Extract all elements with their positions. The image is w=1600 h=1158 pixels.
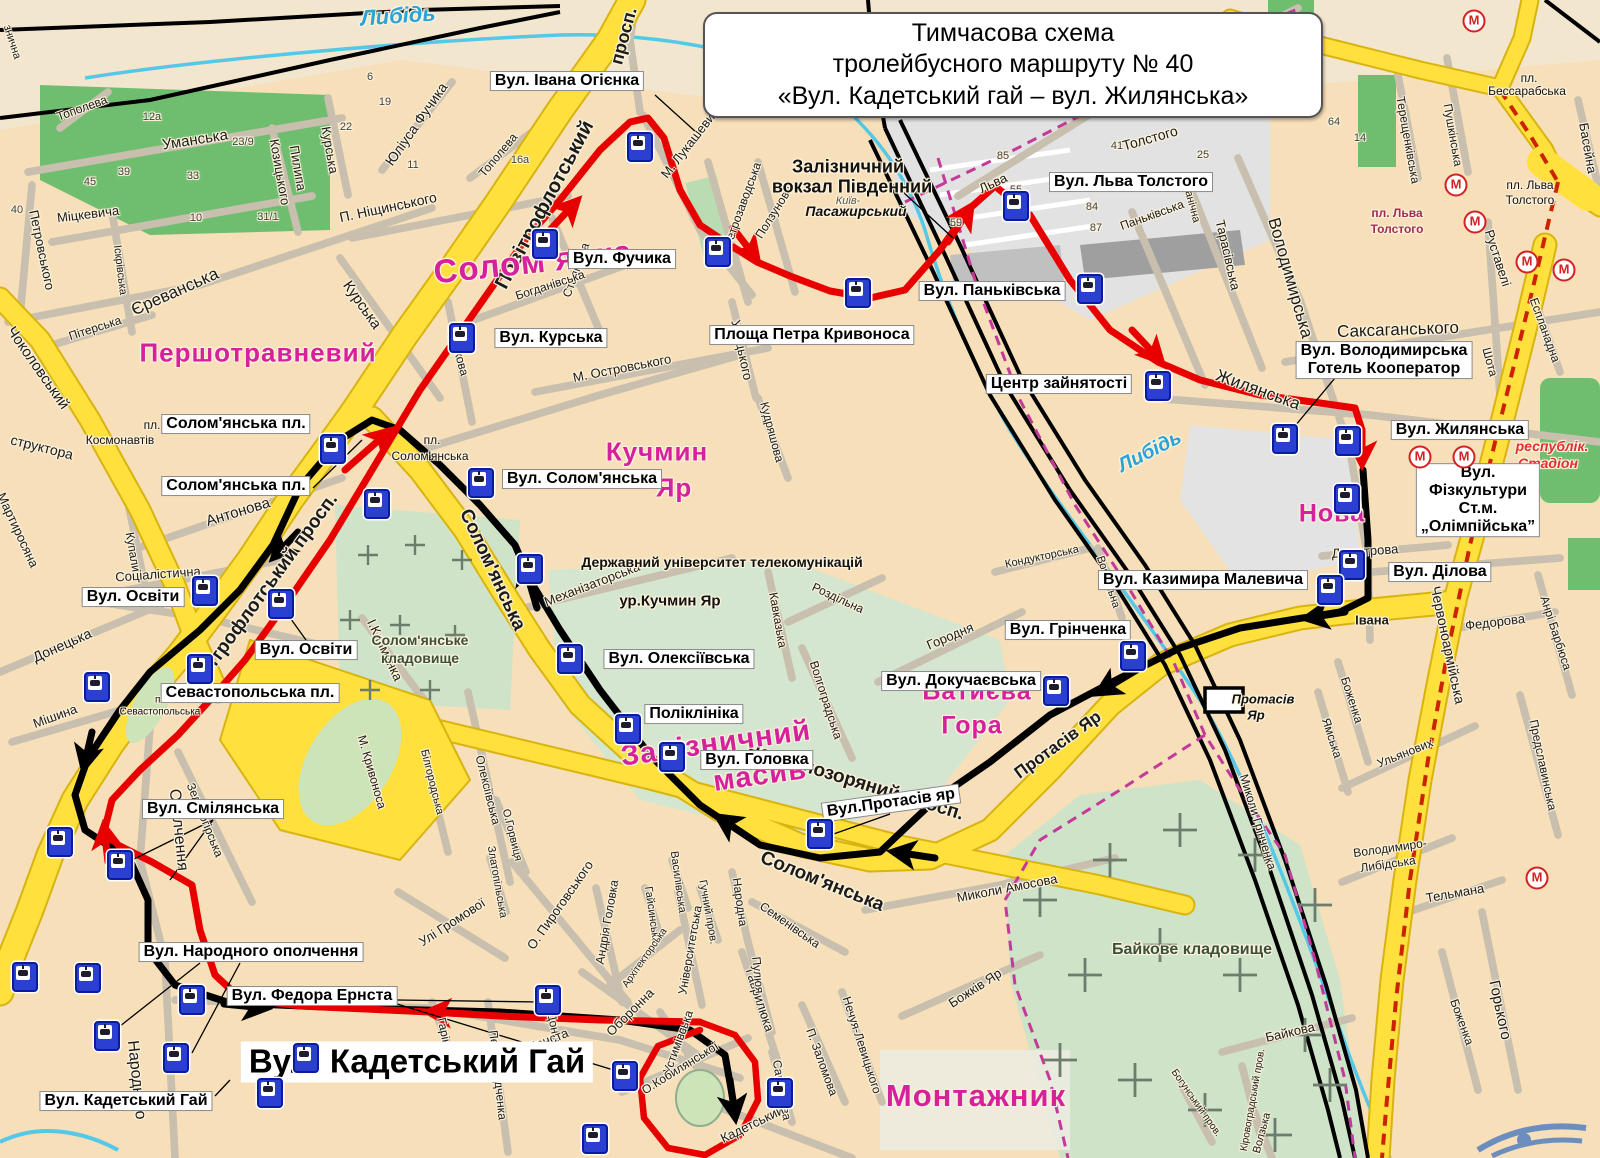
bus-stop-icon — [615, 714, 641, 744]
street-label: знична — [1, 23, 23, 60]
street-label: Ямська — [1319, 716, 1345, 760]
bus-stop-icon — [84, 672, 110, 702]
street-label: Пітерська — [67, 313, 123, 343]
stop-label: Солом'янська пл. — [162, 477, 309, 495]
street-label: Миколи Амосова — [955, 871, 1058, 905]
house-number: 59 — [950, 217, 962, 229]
street-label: Уманська — [161, 126, 229, 153]
bus-glyph — [665, 750, 675, 756]
street-label: структора — [9, 432, 75, 463]
street-label: Тельмана — [1425, 880, 1486, 905]
house-number: 6 — [367, 71, 373, 83]
street-label: Олексіївська — [473, 754, 504, 826]
bus-stop-icon — [94, 1021, 120, 1051]
street-label: Архітекторська — [620, 926, 669, 990]
bus-glyph — [1340, 492, 1350, 498]
bus-glyph — [1345, 558, 1355, 564]
bus-glyph — [90, 680, 100, 686]
bus-glyph — [1083, 282, 1093, 288]
labels-layer: зничнаУманськаМіцкевичаЄреванськаПетровс… — [0, 0, 1600, 1158]
bus-stop-icon — [535, 985, 561, 1015]
street-label: Байкова — [1264, 1019, 1316, 1045]
bus-stop-icon — [557, 644, 583, 674]
map-label: Космонавтів — [86, 433, 155, 447]
metro-station-icon: М — [1553, 259, 1576, 282]
trolley-pole-icon — [542, 232, 544, 236]
street-label: Володимирська — [1263, 216, 1316, 341]
street-label: Богунський пров. — [1169, 1067, 1224, 1138]
metro-station-icon: М — [1526, 867, 1549, 890]
title-line-3: «Вул. Кадетський гай – вул. Жилянська» — [778, 81, 1249, 112]
street-label: Оборонна — [603, 985, 657, 1039]
street-label: Університетська — [675, 904, 704, 995]
street-label: Толстого — [1121, 122, 1180, 153]
street-label: Божків Яр — [946, 965, 1005, 1010]
trolley-pole-icon — [817, 822, 819, 826]
street-label: Тополева — [55, 92, 109, 123]
bus-glyph — [474, 476, 484, 482]
street-label: М. Кривоноса — [355, 734, 389, 811]
bus-stop-icon — [293, 1043, 319, 1073]
stop-label: Вул. Народного ополчення — [140, 943, 363, 961]
bus-stop-icon — [192, 576, 218, 606]
street-label: Петровського — [26, 209, 58, 292]
bus-glyph — [169, 1051, 179, 1057]
map-label: пл. — [424, 433, 441, 447]
street-label: Пилипа — [287, 144, 310, 192]
map-label: Толстого — [1371, 222, 1424, 236]
bus-stop-icon — [612, 1061, 638, 1091]
street-label: Кавказька — [766, 591, 790, 649]
trolley-pole-icon — [202, 579, 204, 583]
house-number: 39 — [118, 166, 130, 178]
house-number: 22 — [340, 121, 352, 133]
bus-stop-icon — [47, 827, 73, 857]
stop-label: Вул. Грінченка — [1006, 621, 1130, 639]
bus-glyph — [100, 1029, 110, 1035]
map-label: Байкове кладовище — [1112, 941, 1272, 959]
bus-stop-icon — [320, 434, 346, 464]
street-label: Антонова — [204, 494, 272, 530]
bus-stop-icon — [627, 132, 653, 162]
bus-glyph — [1126, 649, 1136, 655]
bus-glyph — [455, 331, 465, 337]
trolley-pole-icon — [527, 557, 529, 561]
bus-stop-icon — [845, 278, 871, 308]
map-label: Бессарабська — [1488, 84, 1566, 98]
trolley-pole-icon — [1013, 194, 1015, 198]
trolley-pole-icon — [189, 988, 191, 992]
street-label: Златопільська — [485, 845, 509, 919]
street-label: Нечуя-Левицького — [840, 995, 885, 1096]
title-box: Тимчасова схема тролейбусного маршруту №… — [703, 12, 1323, 118]
map-label: Солом'янська — [392, 449, 469, 463]
bus-glyph — [113, 858, 123, 864]
trolley-pole-icon — [173, 1046, 175, 1050]
trolley-pole-icon — [374, 492, 376, 496]
stop-label: Вул. Докучаєвська — [882, 672, 1040, 690]
map-label: Севастопольська — [120, 707, 201, 718]
street-label: Протасів Яр — [1011, 707, 1106, 783]
street-label: Саксаганського — [1337, 318, 1460, 342]
district-label: Гора — [941, 712, 1002, 741]
street-label: Ульянових — [1375, 735, 1435, 770]
trolley-pole-icon — [197, 657, 199, 661]
bus-stop-icon — [107, 850, 133, 880]
bus-stop-icon — [1145, 371, 1171, 401]
street-label: О. Пироговського — [524, 858, 596, 953]
bus-glyph — [326, 442, 336, 448]
map-label: пл. Льва — [1371, 206, 1422, 220]
house-number: 23/9 — [232, 136, 253, 148]
house-number: 16а — [511, 154, 529, 166]
bus-glyph — [299, 1051, 309, 1057]
trolley-pole-icon — [1344, 487, 1346, 491]
map-label: кладовище — [381, 650, 459, 666]
bus-stop-icon — [532, 229, 558, 259]
bus-stop-icon — [582, 1124, 608, 1154]
trolley-pole-icon — [1087, 277, 1089, 281]
street-label: Горького — [1485, 979, 1514, 1041]
stop-label: Вул. Кадетський Гай — [40, 1092, 211, 1110]
map-label: Залізничний — [792, 157, 904, 178]
bus-stop-icon — [179, 985, 205, 1015]
river-label: Либідь — [1114, 426, 1185, 477]
map-label: Толстого — [1506, 193, 1555, 207]
street-label: П. Заломова — [803, 1026, 840, 1097]
bus-stop-icon — [257, 1078, 283, 1108]
map-label: Пасажирський — [805, 203, 906, 219]
district-label: Монтажник — [886, 1078, 1066, 1114]
street-label: Еспланадна — [1527, 296, 1563, 364]
bus-stop-icon — [1272, 424, 1298, 454]
stop-label: Вул. Ділова — [1389, 563, 1490, 581]
bus-stop-icon — [1077, 274, 1103, 304]
street-label: П. Ніщинського — [338, 189, 438, 225]
trolley-pole-icon — [1053, 679, 1055, 683]
map-label: Солом'янське — [372, 632, 469, 648]
bus-stop-icon — [1003, 191, 1029, 221]
street-label: М. Островського — [572, 351, 673, 385]
trolley-pole-icon — [57, 830, 59, 834]
trolley-pole-icon — [459, 326, 461, 330]
bus-glyph — [1151, 379, 1161, 385]
trolley-pole-icon — [267, 1081, 269, 1085]
bus-glyph — [563, 652, 573, 658]
trolley-pole-icon — [715, 240, 717, 244]
trolley-pole-icon — [478, 471, 480, 475]
street-label: Руставелі — [1482, 228, 1514, 288]
trolley-pole-icon — [545, 988, 547, 992]
street-label: Зеленогірська — [184, 781, 226, 859]
map-label: ур.Кучмин Яр — [619, 593, 720, 610]
stop-label: Вул. Головка — [701, 751, 812, 769]
stop-label: Вул. Солом'янська — [503, 470, 661, 488]
map-label: республік. — [1516, 438, 1589, 454]
bus-glyph — [198, 584, 208, 590]
metro-station-icon: М — [1463, 10, 1486, 33]
street-label: Паньківська — [1118, 197, 1186, 233]
bus-glyph — [193, 662, 203, 668]
street-label: Анрі Барбюса — [1537, 594, 1574, 672]
stop-label: Вул. Освіти — [83, 588, 184, 606]
street-label: Боженка — [1447, 997, 1477, 1047]
stop-label: Поліклініка — [645, 705, 742, 723]
bus-stop-icon — [1043, 676, 1069, 706]
street-label: Кадетський — [718, 1102, 786, 1146]
stop-label: Вул. Федора Ернста — [228, 987, 397, 1005]
trolley-pole-icon — [637, 135, 639, 139]
street-label: Мішина — [31, 701, 79, 731]
bus-stop-icon — [705, 237, 731, 267]
stop-label: Вул. Льва Толстого — [1050, 173, 1212, 191]
stop-label: Вул. Освіти — [256, 641, 357, 659]
trolley-pole-icon — [592, 1127, 594, 1131]
metro-station-icon: М — [1464, 211, 1487, 234]
bus-glyph — [1278, 432, 1288, 438]
street-label: Предславинська — [1527, 718, 1560, 811]
bus-stop-icon — [468, 468, 494, 498]
trolley-pole-icon — [1349, 553, 1351, 557]
trolley-pole-icon — [85, 966, 87, 970]
bus-glyph — [851, 286, 861, 292]
street-label: О.Горвиця — [500, 808, 525, 863]
bus-glyph — [263, 1086, 273, 1092]
bus-glyph — [588, 1132, 598, 1138]
bus-glyph — [18, 970, 28, 976]
trolley-pole-icon — [622, 1064, 624, 1068]
street-label: Пулюя — [749, 956, 767, 994]
stop-label: Площа Петра Кривоноса — [710, 326, 913, 344]
bus-glyph — [1049, 684, 1059, 690]
house-number: 40 — [11, 204, 23, 216]
bus-stop-icon — [1120, 641, 1146, 671]
bus-stop-icon — [1335, 426, 1361, 456]
house-number: 87 — [1090, 222, 1102, 234]
trolley-pole-icon — [1327, 578, 1329, 582]
bus-glyph — [541, 993, 551, 999]
map-label: Протасів — [1232, 692, 1295, 707]
bus-glyph — [813, 827, 823, 833]
trolley-pole-icon — [104, 1024, 106, 1028]
street-label: Семенівська — [757, 899, 823, 951]
house-number: 10 — [190, 212, 202, 224]
metro-station-icon: М — [1409, 446, 1432, 469]
house-number: 19 — [379, 96, 391, 108]
street-label: Курська — [318, 125, 341, 175]
metro-station-icon: М — [1453, 446, 1476, 469]
stop-label: Вул. Івана Огієнка — [491, 72, 643, 90]
trolley-pole-icon — [625, 717, 627, 721]
trolley-pole-icon — [22, 965, 24, 969]
bus-stop-icon — [1339, 550, 1365, 580]
bus-glyph — [370, 497, 380, 503]
bus-stop-icon — [268, 589, 294, 619]
stop-label: Вул. ФізкультуриСт.м. „Олімпійська” — [1417, 464, 1539, 536]
trolley-pole-icon — [94, 675, 96, 679]
trolley-pole-icon — [1130, 644, 1132, 648]
stop-label: Солом'янська пл. — [162, 415, 309, 433]
river-label: Либідь — [360, 0, 437, 31]
street-label: Тарасівська — [1213, 218, 1244, 291]
trolley-pole-icon — [117, 853, 119, 857]
street-label: Іскрівська — [111, 244, 129, 295]
trolley-pole-icon — [1282, 427, 1284, 431]
bus-glyph — [711, 245, 721, 251]
district-label: Кучмин — [606, 437, 708, 468]
stop-label: Вул. Паньківська — [920, 282, 1065, 300]
street-label: Білгородська — [418, 748, 446, 816]
street-label: Роздільна — [810, 580, 866, 616]
bus-stop-icon — [767, 1078, 793, 1108]
street-label: Андрія Головка — [593, 879, 622, 965]
house-number: 12а — [143, 111, 161, 123]
bus-glyph — [53, 835, 63, 841]
bus-glyph — [523, 562, 533, 568]
street-label: Юліуса Фучика — [382, 80, 451, 169]
street-label: Кондукторська — [1004, 543, 1080, 570]
stop-label: Вул. Жилянська — [1392, 421, 1528, 439]
trolley-pole-icon — [567, 647, 569, 651]
metro-station-icon: М — [1516, 251, 1539, 274]
district-label: Яр — [656, 473, 693, 504]
map-label: пл. — [144, 418, 161, 432]
bus-glyph — [538, 237, 548, 243]
bus-stop-icon — [12, 962, 38, 992]
trolley-pole-icon — [777, 1081, 779, 1085]
stop-label: Вул. Смілянська — [143, 800, 283, 818]
street-label: Народна — [730, 877, 751, 927]
bus-stop-icon — [187, 654, 213, 684]
trolley-pole-icon — [1345, 429, 1347, 433]
map-label: пл. — [1521, 71, 1538, 85]
street-label: Чоколовський — [3, 323, 72, 412]
house-number: 31/1 — [257, 211, 278, 223]
street-label: Івана — [1355, 613, 1389, 628]
trolley-pole-icon — [855, 281, 857, 285]
bus-stop-icon — [1334, 484, 1360, 514]
stop-label: Вул. Курська — [495, 329, 606, 347]
bus-stop-icon — [1317, 575, 1343, 605]
bus-stop-icon — [659, 742, 685, 772]
trolley-pole-icon — [278, 592, 280, 596]
bus-glyph — [1009, 199, 1019, 205]
stop-label: Вул. ВолодимирськаГотель Кооператор — [1297, 342, 1472, 378]
street-label: Шота — [1479, 346, 1500, 378]
bus-glyph — [1341, 434, 1351, 440]
street-label: Пушкінська — [1441, 103, 1466, 168]
house-number: 85 — [997, 150, 1009, 162]
house-number: 14 — [1354, 132, 1366, 144]
street-label: Городня — [924, 619, 975, 652]
trolley-pole-icon — [669, 745, 671, 749]
metro-station-icon: М — [1445, 174, 1468, 197]
bus-stop-icon — [75, 963, 101, 993]
street-label: Донецька — [30, 625, 94, 665]
bus-glyph — [621, 722, 631, 728]
stop-label: Вул. Олексіївська — [604, 650, 753, 668]
house-number: 41 — [1111, 140, 1123, 152]
map-label: пл. Льва — [1506, 178, 1553, 192]
street-label: Василівська — [668, 850, 689, 913]
street-label: Червоноармійська — [1428, 585, 1469, 706]
house-number: 45 — [84, 176, 96, 188]
house-number: 64 — [1328, 116, 1340, 128]
bus-stop-icon — [364, 489, 390, 519]
bus-stop-icon — [449, 323, 475, 353]
map-label: Яр — [1247, 708, 1264, 723]
street-label: Федорова — [1464, 611, 1525, 633]
house-number: 25 — [1197, 149, 1209, 161]
bus-stop-icon — [807, 819, 833, 849]
stop-label: Центр зайнятості — [987, 375, 1131, 393]
house-number: 11 — [407, 159, 418, 171]
street-label: Миколи Грінченка — [1237, 773, 1279, 872]
street-label: просп. — [606, 5, 641, 67]
street-label: Курська — [339, 278, 384, 333]
trolley-pole-icon — [303, 1046, 305, 1050]
street-label: Боженка — [1338, 675, 1366, 725]
bus-glyph — [185, 993, 195, 999]
stop-label: Вул. Фучика — [569, 250, 675, 268]
bus-glyph — [274, 597, 284, 603]
bus-glyph — [633, 140, 643, 146]
trolley-pole-icon — [330, 437, 332, 441]
street-label: Міцкевича — [56, 203, 120, 225]
district-label: Першотравневий — [139, 338, 376, 369]
map-canvas: зничнаУманськаМіцкевичаЄреванськаПетровс… — [0, 0, 1600, 1158]
street-label: Кудряшова — [757, 400, 787, 463]
house-number: 33 — [187, 170, 199, 182]
stop-label: Вул. Казимира Малевича — [1099, 571, 1307, 589]
street-label: Купали — [123, 531, 144, 573]
house-number: 84 — [1086, 201, 1098, 213]
street-label: Єреванська — [128, 264, 221, 320]
trolley-pole-icon — [1155, 374, 1157, 378]
street-label: Улі Громової — [416, 895, 488, 949]
street-label: Волгоградська — [807, 659, 845, 741]
street-label: Жилянська — [1213, 365, 1303, 414]
street-label: Мартиросяна — [0, 490, 42, 570]
bus-glyph — [618, 1069, 628, 1075]
bus-glyph — [1323, 583, 1333, 589]
bus-glyph — [773, 1086, 783, 1092]
map-label: Державний університет телекомунікацій — [581, 554, 862, 570]
title-line-2: тролейбусного маршруту № 40 — [833, 49, 1194, 80]
street-label: Терещенківська — [1393, 95, 1422, 184]
bus-stop-icon — [163, 1043, 189, 1073]
street-label: Басейна — [1576, 122, 1600, 175]
stop-label: Севастопольська пл. — [162, 684, 339, 702]
bus-glyph — [81, 971, 91, 977]
title-line-1: Тимчасова схема — [912, 18, 1115, 49]
bus-stop-icon — [517, 554, 543, 584]
